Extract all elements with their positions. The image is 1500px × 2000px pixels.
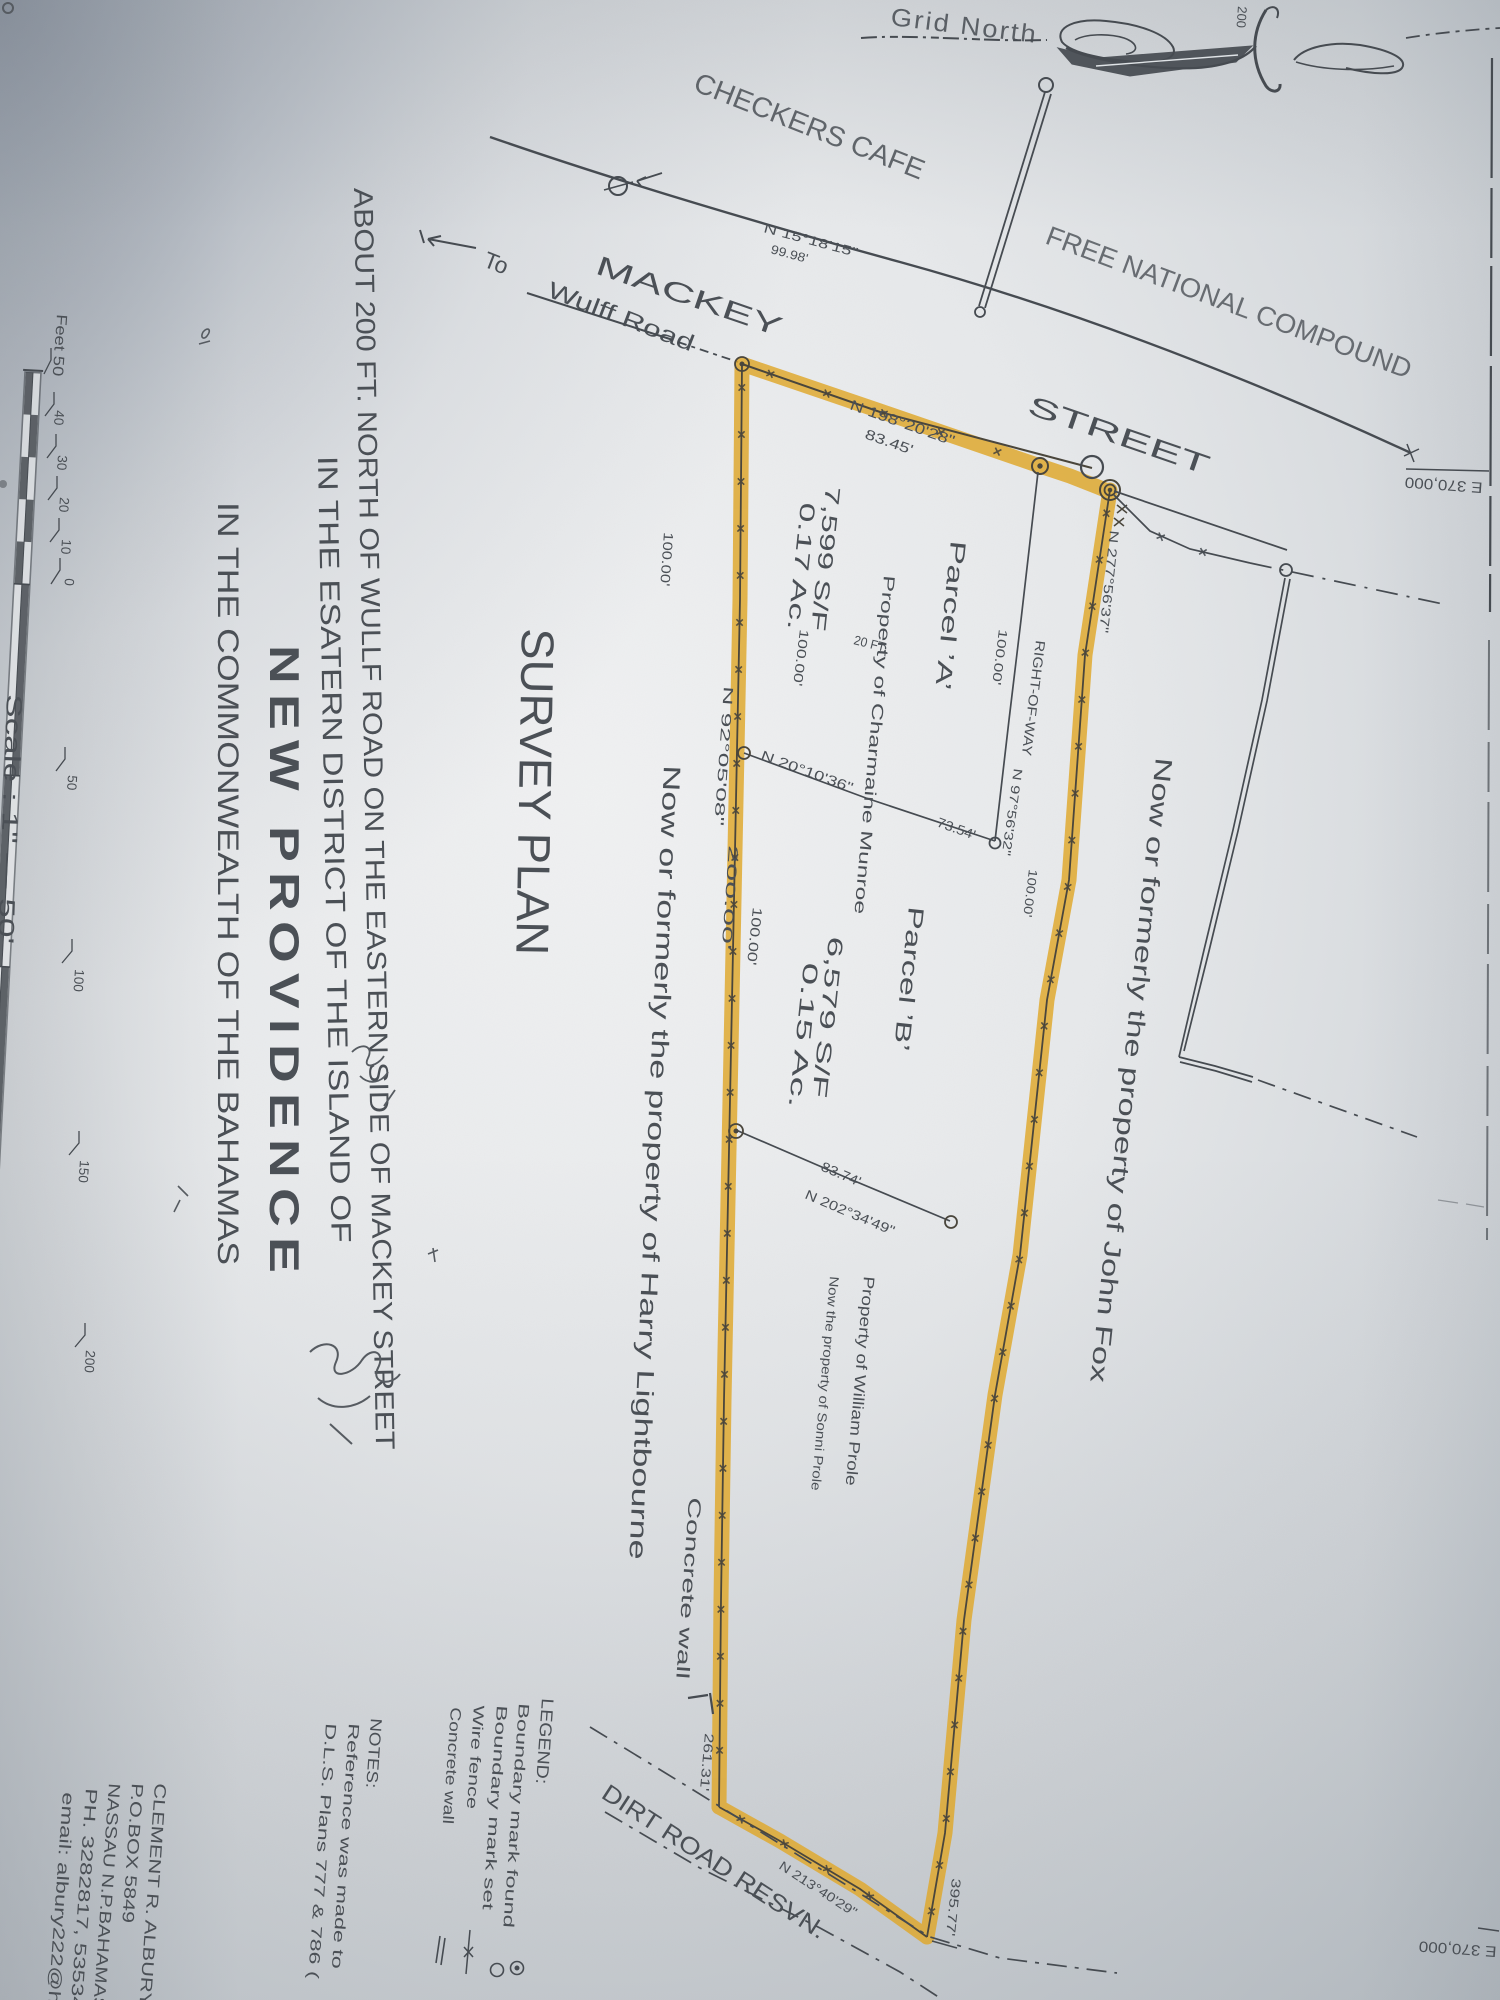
svg-text:0: 0 bbox=[61, 578, 76, 587]
svg-text:10: 10 bbox=[58, 539, 74, 555]
svg-text:SURVEY PLAN: SURVEY PLAN bbox=[506, 628, 564, 956]
svg-text:200: 200 bbox=[1233, 6, 1249, 29]
svg-text:200: 200 bbox=[81, 1350, 98, 1374]
svg-text:150: 150 bbox=[75, 1160, 92, 1184]
svg-text:20: 20 bbox=[56, 497, 72, 513]
svg-text:IN THE COMMONWEALTH OF THE BAH: IN THE COMMONWEALTH OF THE BAHAMAS bbox=[211, 502, 244, 1265]
svg-text:NEW PROVIDENCE: NEW PROVIDENCE bbox=[261, 645, 308, 1283]
svg-text:100: 100 bbox=[70, 969, 87, 993]
svg-text:40: 40 bbox=[51, 410, 67, 426]
svg-text:30: 30 bbox=[54, 455, 70, 471]
svg-text:50: 50 bbox=[64, 775, 80, 791]
